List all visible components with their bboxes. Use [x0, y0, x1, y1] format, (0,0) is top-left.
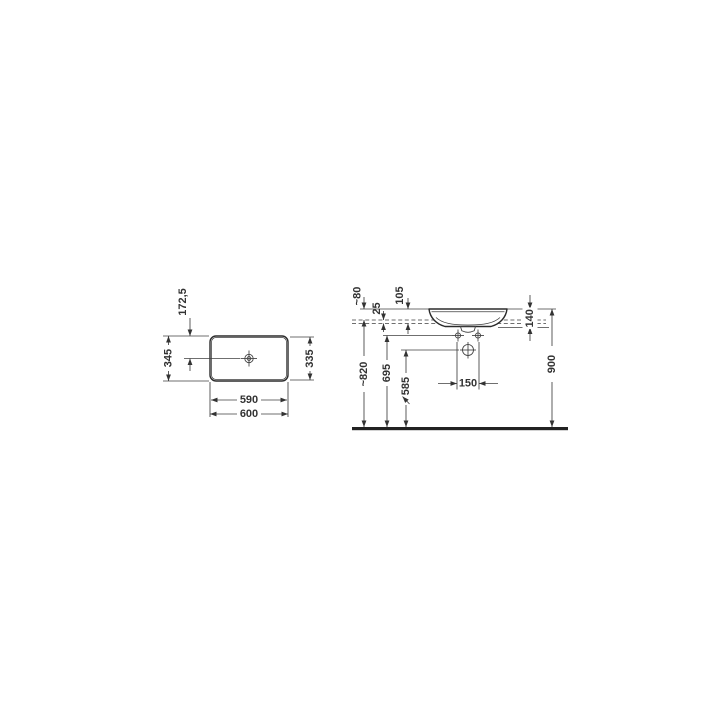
- dim-label-345: 345: [163, 349, 175, 367]
- drain-fitting: [461, 327, 476, 333]
- drain-pipe-symbol: [460, 342, 476, 359]
- technical-drawing: 345 172,5 335 590 600: [0, 0, 720, 720]
- floor-line: [352, 427, 568, 430]
- top-view: 345 172,5 335 590 600: [163, 288, 317, 420]
- dim-fixing-hole-height-695: 695: [381, 336, 393, 428]
- dim-label-105: 105: [394, 286, 406, 304]
- dim-label-900: 900: [546, 355, 558, 373]
- side-view: ~80 ~820 25 105 695: [352, 286, 569, 430]
- dim-depth-345: 345: [163, 336, 175, 381]
- dim-label-335: 335: [304, 349, 316, 367]
- dim-label-600: 600: [240, 408, 258, 420]
- dim-label-140: 140: [524, 309, 536, 327]
- dim-counter-thickness-25: 25: [371, 302, 384, 332]
- dim-basin-height-140: 140: [523, 295, 538, 341]
- dim-label-695: 695: [381, 364, 393, 382]
- dim-label-150: 150: [459, 378, 477, 390]
- dim-label-172-5: 172,5: [177, 288, 189, 316]
- dim-width-600: 600: [210, 408, 288, 420]
- dim-width-590: 590: [211, 394, 287, 406]
- dim-rim-above-counter-80: ~80: [352, 287, 365, 309]
- dim-label-820: ~820: [358, 362, 370, 387]
- drawing-page: 345 172,5 335 590 600: [0, 0, 720, 720]
- dim-depth-335: 335: [304, 337, 316, 380]
- dim-rim-height-900: 900: [546, 309, 558, 427]
- dim-counter-height-820: ~820: [358, 320, 370, 427]
- dim-label-590: 590: [240, 394, 258, 406]
- dim-label-585: 585: [400, 377, 412, 395]
- basin-profile-side-view: [429, 309, 507, 332]
- dim-drain-height-585: 585: [400, 350, 412, 427]
- dim-label-80: ~80: [352, 287, 364, 306]
- dim-label-25: 25: [371, 302, 383, 314]
- dim-rim-to-counter-underside-105: 105: [394, 286, 408, 334]
